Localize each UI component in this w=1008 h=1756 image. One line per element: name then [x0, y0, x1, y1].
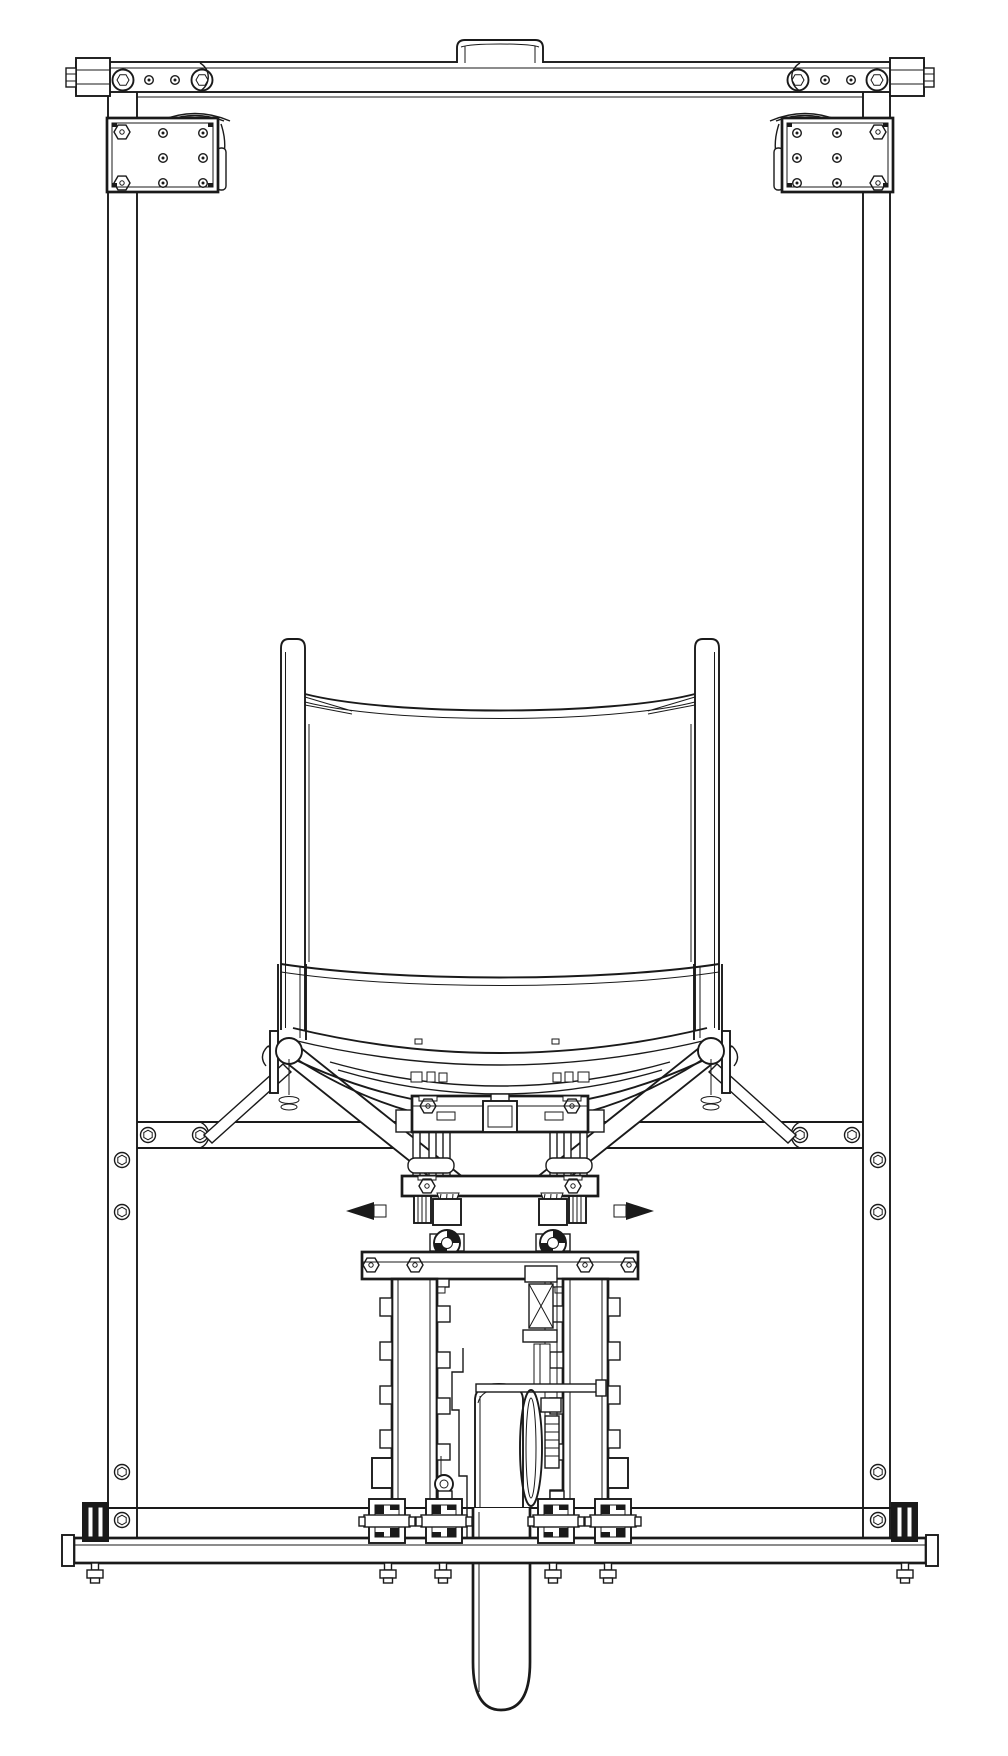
- left-corner-plate: [107, 118, 226, 192]
- u-bolts: [408, 1128, 592, 1182]
- seat-back-bottom-rail: [281, 964, 719, 986]
- technical-drawing-canvas: [0, 0, 1008, 1756]
- side-spikes: [346, 1196, 654, 1223]
- corner-rollers: [160, 114, 840, 171]
- base-bar: [62, 1535, 938, 1566]
- sling-back-top-hem: [305, 694, 695, 719]
- lower-clamp-plate: [402, 1176, 598, 1196]
- back-panel: [309, 724, 691, 962]
- left-upright-post: [108, 92, 137, 1540]
- top-center-tab: [457, 40, 543, 63]
- left-back-post: [281, 639, 305, 1030]
- upper-clamp-plate: [396, 1094, 604, 1132]
- right-corner-plate: [774, 118, 893, 192]
- cad-drawing-svg: [0, 0, 1008, 1756]
- gear-rack: [541, 1398, 561, 1468]
- right-upright-post: [863, 92, 890, 1540]
- seat-sling-hem: [330, 1062, 670, 1094]
- seat-side-tubes: [278, 964, 722, 1040]
- top-crossbar: [76, 62, 924, 92]
- right-back-post: [695, 639, 719, 1030]
- hem-buckle-tabs: [411, 1072, 589, 1082]
- seat-front-tube: [293, 1028, 707, 1065]
